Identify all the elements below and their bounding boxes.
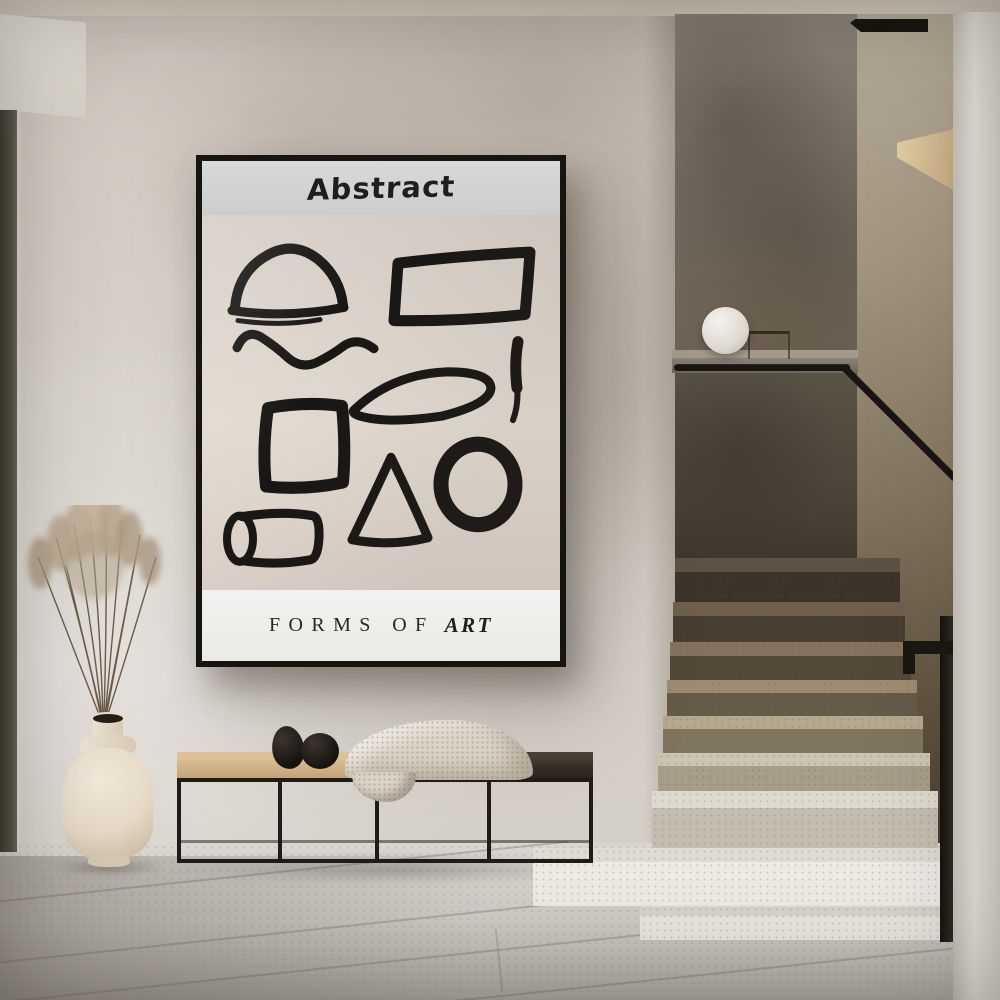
dried-grass [22,505,172,723]
vase-mouth [93,714,123,723]
shape-semicircle [235,249,343,308]
handrail-post [940,616,953,942]
door-frame-highlight [17,110,22,852]
decor-pebble [301,733,339,769]
vase-foot [88,855,130,867]
stair-step-bottom [533,848,948,906]
poster-title: Abstract [306,169,456,207]
bench-back-rail [181,840,589,843]
stairwell-lower-wall [675,372,857,562]
stair-step [658,753,930,791]
wall-shading [560,120,676,660]
stair-step [652,791,938,848]
bench-frame-post [278,778,282,863]
ceiling-beam [0,14,86,118]
abstract-shapes-canvas [202,215,560,590]
vase-body [63,748,153,860]
stairwell-dark-wall [675,14,857,374]
poster-footer-band: FORMS OF ART [202,590,560,661]
foreground-wall-column [953,12,1000,1000]
shape-semicircle-base [232,307,344,313]
shape-cylinder-end [227,516,253,562]
stair-step [663,716,923,753]
poster-subtitle: FORMS OF [269,614,435,637]
stair-step [667,680,917,716]
shape-ellipse [353,372,491,420]
poster-subtitle-italic: ART [445,613,493,638]
shape-rectangle [394,252,530,320]
stair-step [670,642,911,680]
stair-step-bottom [640,906,948,940]
door-frame-edge [0,110,17,852]
shape-circle [441,444,515,524]
stair-step [675,558,900,602]
upper-handrail [850,19,928,32]
interior-scene: Abstract FORMS OF ART [0,0,1000,1000]
handrail-horizontal [674,364,850,371]
landing-side-table [748,331,790,359]
framed-poster: Abstract FORMS OF ART [196,155,566,667]
shape-wave [237,334,374,365]
shape-semicircle-base2 [238,320,320,324]
grass-plumes [28,505,161,599]
stair-step [673,602,905,642]
shape-triangle [352,457,428,543]
handrail-bracket-stub [903,641,915,674]
bench-frame-post [487,778,491,863]
shape-square [264,404,344,488]
poster-artwork [202,215,560,590]
poster-header-band: Abstract [202,161,560,215]
sphere-lamp [702,307,749,354]
